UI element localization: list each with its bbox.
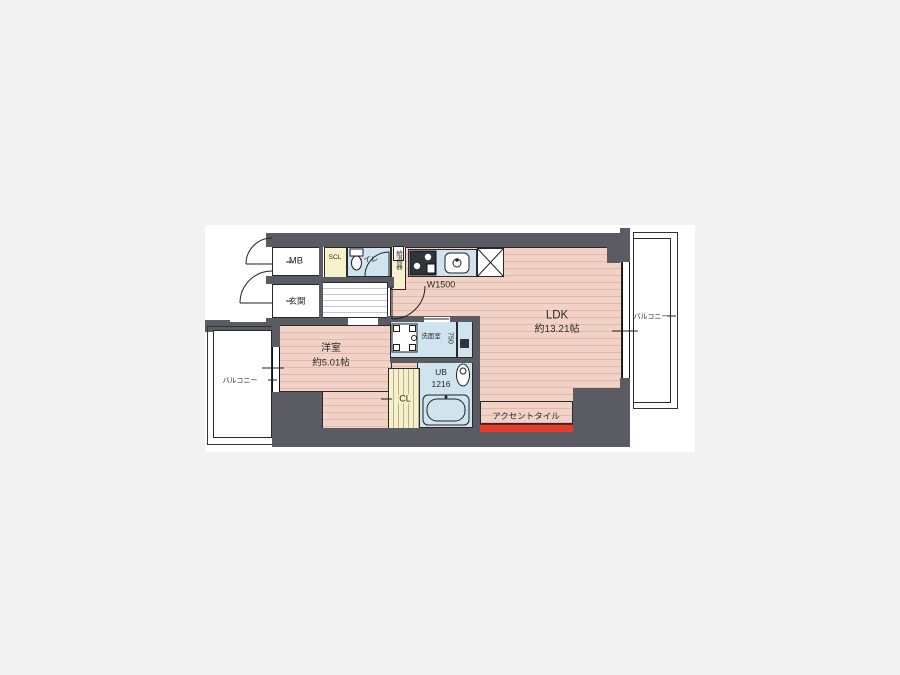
ldk-size-label: 約13.21帖: [534, 325, 579, 335]
washroom-door-opening: [424, 317, 450, 322]
wall-segment: [322, 277, 394, 282]
shoe-closet-label: SCL: [329, 255, 342, 262]
wall-segment: [390, 358, 473, 363]
bath-name-label: UB: [435, 368, 447, 377]
kitchen-width-label: W1500: [427, 281, 456, 290]
mb-label: MB: [289, 256, 303, 266]
entrance-label: 玄関: [288, 297, 305, 306]
wall-segment: [272, 325, 280, 347]
wall-segment: [620, 228, 630, 262]
kitchen-counter: [408, 249, 477, 277]
ldk-name-label: LDK: [546, 310, 568, 322]
refrigerator-space: [477, 248, 504, 277]
water-heater-label: 給湯器: [394, 250, 401, 270]
room-bedroom-extension: [322, 392, 390, 430]
wall-segment: [319, 247, 323, 318]
bedroom-window: [272, 347, 280, 392]
wall-segment: [620, 378, 630, 390]
bedroom-name-label: 洋室: [321, 344, 341, 354]
wall-segment: [480, 432, 573, 447]
wall-segment: [266, 233, 620, 247]
accent-tile-strip: [480, 424, 573, 432]
wall-segment: [473, 316, 480, 428]
accent-tile-label: アクセントタイル: [492, 412, 560, 421]
washroom-width-label: 750: [447, 332, 454, 344]
wall-segment: [272, 392, 322, 447]
balcony-right: [633, 238, 671, 403]
wall-segment: [266, 276, 322, 284]
bedroom-door-opening: [348, 318, 378, 325]
toilet-label: トイレ: [356, 255, 379, 263]
washroom-label: 洗面室: [421, 334, 441, 341]
wall-segment: [573, 388, 630, 447]
bath-size-label: 1216: [432, 380, 451, 389]
bedroom-size-label: 約5.01帖: [312, 358, 350, 368]
ldk-window: [622, 262, 630, 378]
hallway: [322, 282, 388, 318]
balcony-left-label: バルコニー: [223, 378, 258, 385]
wall-segment: [607, 247, 620, 263]
closet-label: CL: [398, 395, 412, 404]
vanity-cabinet: [460, 339, 469, 348]
wall-segment: [388, 277, 394, 288]
wall-segment: [322, 428, 480, 447]
room-shoe-closet: [324, 247, 347, 278]
balcony-right-label: バルコニー: [634, 314, 669, 321]
